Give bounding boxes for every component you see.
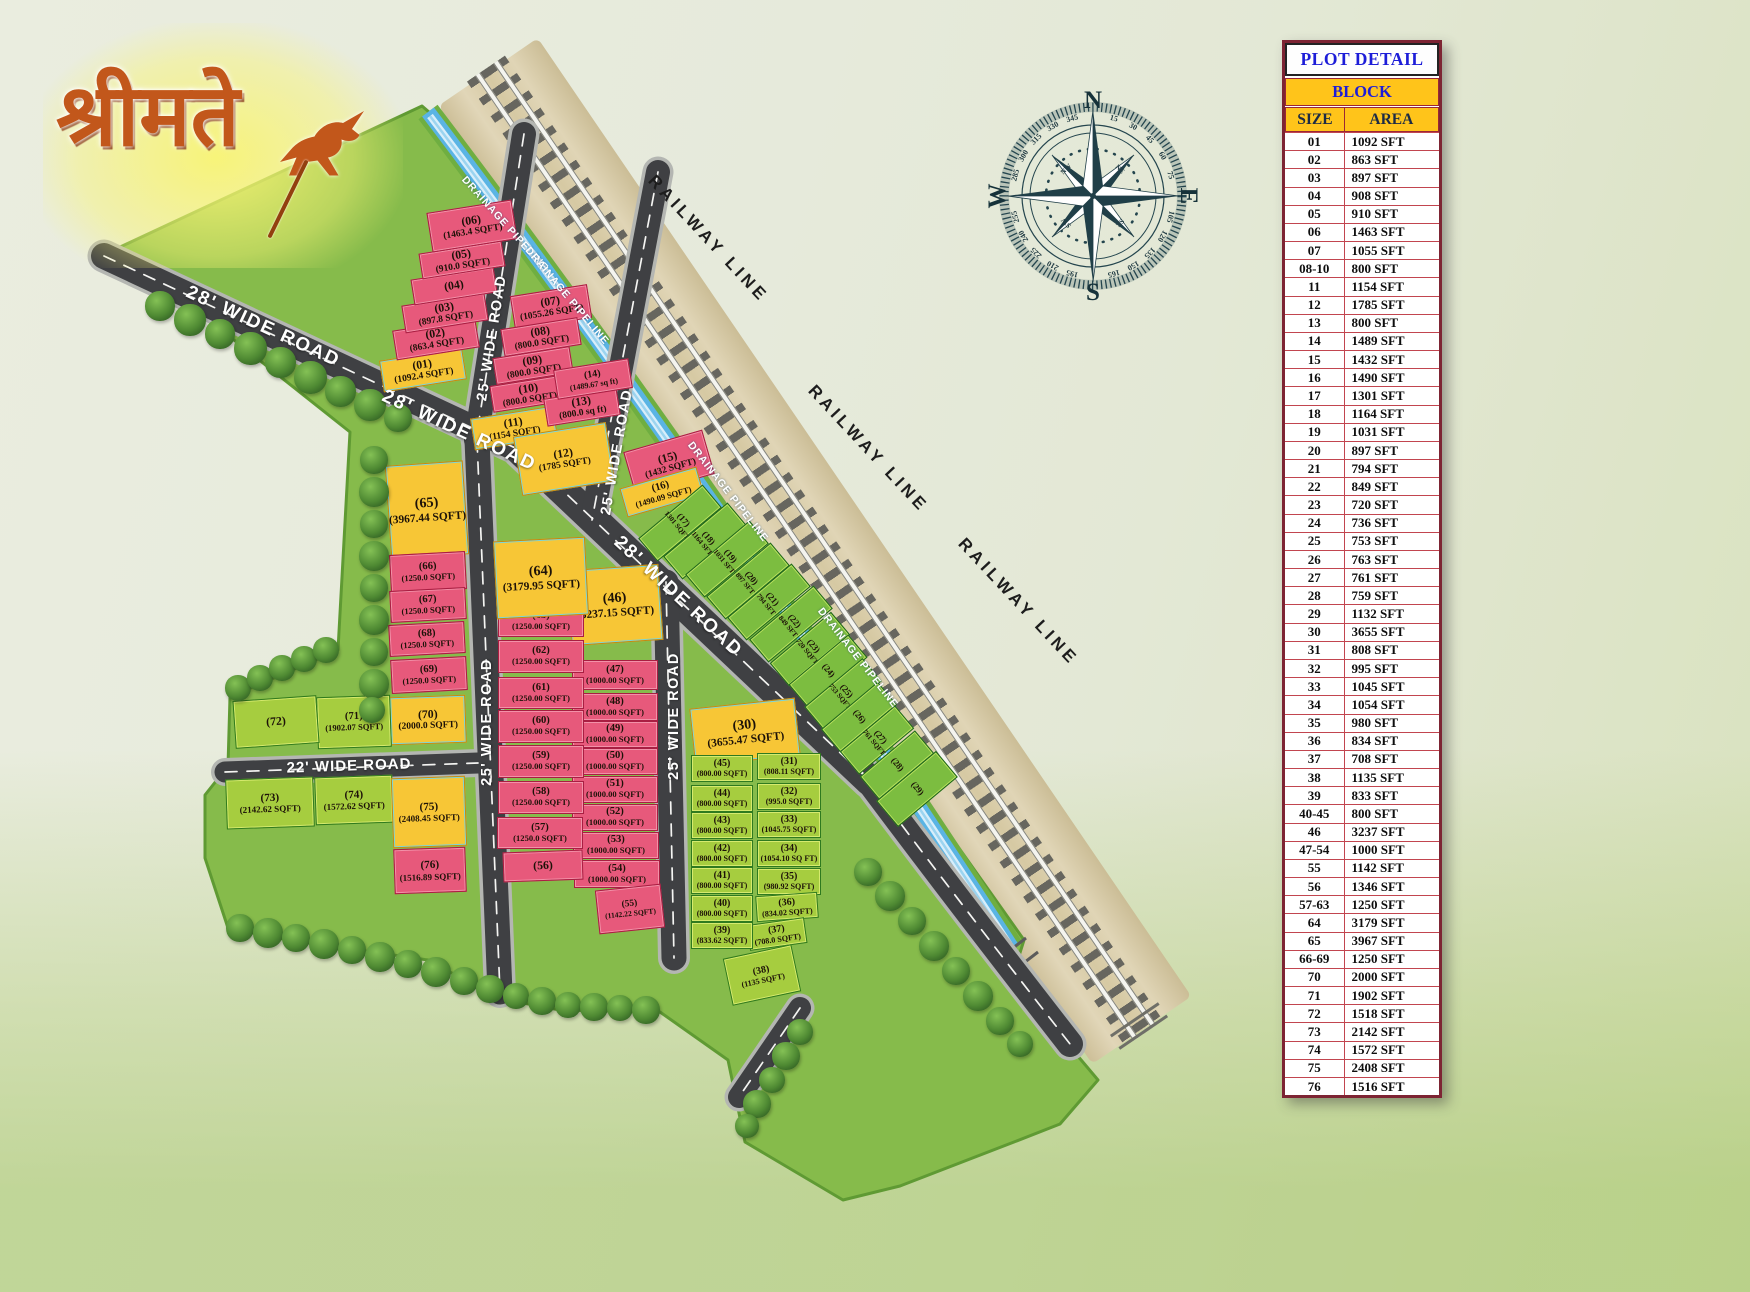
plot-area-cell: 736 SFT: [1345, 515, 1439, 532]
area-column-header: AREA: [1345, 108, 1438, 131]
plot-detail-row: 381135 SFT: [1285, 768, 1439, 786]
plot-area-cell: 1432 SFT: [1345, 351, 1439, 368]
plot-size-cell: 05: [1285, 206, 1345, 223]
plot-detail-row: 721518 SFT: [1285, 1004, 1439, 1022]
plot-size-cell: 21: [1285, 460, 1345, 477]
compass-degree-label: 75: [1165, 170, 1176, 180]
plot-detail-row: 24736 SFT: [1285, 514, 1439, 532]
compass-degree-label: 285: [1009, 168, 1021, 182]
plot-size-cell: 72: [1285, 1005, 1345, 1022]
table-title: PLOT DETAIL: [1285, 43, 1439, 76]
plot-size-cell: 25: [1285, 533, 1345, 550]
plot-size-cell: 73: [1285, 1023, 1345, 1040]
plot-area-cell: 1031 SFT: [1345, 424, 1439, 441]
plot-size-cell: 15: [1285, 351, 1345, 368]
plot-detail-row: 02863 SFT: [1285, 150, 1439, 168]
plot-area-cell: 980 SFT: [1345, 715, 1439, 732]
compass-degree-label: 345: [1065, 112, 1079, 124]
plot-detail-row: 40-45800 SFT: [1285, 804, 1439, 822]
plot-size-cell: 08-10: [1285, 260, 1345, 277]
plot-detail-row: 20897 SFT: [1285, 441, 1439, 459]
plot-area-cell: 1250 SFT: [1345, 951, 1439, 968]
plot-size-cell: 71: [1285, 987, 1345, 1004]
compass-degree-label: 105: [1165, 210, 1177, 224]
plot-area-cell: 3655 SFT: [1345, 624, 1439, 641]
plot-detail-row: 161490 SFT: [1285, 368, 1439, 386]
plot-area-cell: 1489 SFT: [1345, 333, 1439, 350]
plot-detail-row: 28759 SFT: [1285, 586, 1439, 604]
plot-area-cell: 834 SFT: [1345, 733, 1439, 750]
plot-size-cell: 30: [1285, 624, 1345, 641]
plot-size-cell: 22: [1285, 478, 1345, 495]
drainage-label-2: DRAINAGE PIPELINE: [523, 245, 612, 348]
plot-size-cell: 02: [1285, 151, 1345, 168]
plot-size-cell: 27: [1285, 569, 1345, 586]
plot-area-cell: 808 SFT: [1345, 642, 1439, 659]
plot-area-cell: 3237 SFT: [1345, 824, 1439, 841]
plot-area-cell: 910 SFT: [1345, 206, 1439, 223]
plot-detail-row: 66-691250 SFT: [1285, 950, 1439, 968]
plot-area-cell: 1154 SFT: [1345, 278, 1439, 295]
plot-area-cell: 800 SFT: [1345, 315, 1439, 332]
road-label-28-wide-3: 28' WIDE ROAD: [609, 532, 747, 663]
plot-size-cell: 13: [1285, 315, 1345, 332]
plot-size-cell: 06: [1285, 224, 1345, 241]
compass-degree-label: 165: [1107, 268, 1121, 280]
plot-area-cell: 1902 SFT: [1345, 987, 1439, 1004]
plot-area-cell: 1164 SFT: [1345, 406, 1439, 423]
compass-west-label: W: [984, 184, 1011, 209]
plot-detail-row: 341054 SFT: [1285, 695, 1439, 713]
plot-area-cell: 763 SFT: [1345, 551, 1439, 568]
plot-area-cell: 1346 SFT: [1345, 878, 1439, 895]
plot-area-cell: 1000 SFT: [1345, 842, 1439, 859]
plot-area-cell: 1490 SFT: [1345, 369, 1439, 386]
plot-detail-table: PLOT DETAIL BLOCK SIZE AREA 011092 SFT02…: [1282, 40, 1442, 1098]
compass-degree-label: 255: [1009, 210, 1021, 224]
plot-detail-row: 05910 SFT: [1285, 205, 1439, 223]
railway-line-label-3: RAILWAY LINE: [954, 534, 1083, 670]
plot-size-cell: 26: [1285, 551, 1345, 568]
plot-area-cell: 897 SFT: [1345, 442, 1439, 459]
plot-size-cell: 64: [1285, 914, 1345, 931]
plot-area-cell: 897 SFT: [1345, 169, 1439, 186]
plot-size-cell: 56: [1285, 878, 1345, 895]
plot-size-cell: 14: [1285, 333, 1345, 350]
plot-size-cell: 31: [1285, 642, 1345, 659]
plot-detail-row: 463237 SFT: [1285, 823, 1439, 841]
plot-size-cell: 34: [1285, 696, 1345, 713]
plot-size-cell: 74: [1285, 1042, 1345, 1059]
plot-area-cell: 1518 SFT: [1345, 1005, 1439, 1022]
plot-detail-row: 071055 SFT: [1285, 241, 1439, 259]
plot-detail-row: 21794 SFT: [1285, 459, 1439, 477]
plot-detail-row: 36834 SFT: [1285, 732, 1439, 750]
plot-area-cell: 1463 SFT: [1345, 224, 1439, 241]
plot-area-cell: 3967 SFT: [1345, 933, 1439, 950]
road-label-25-wide-3: 25' WIDE ROAD: [479, 658, 495, 786]
plot-size-cell: 39: [1285, 787, 1345, 804]
plot-detail-row: 653967 SFT: [1285, 932, 1439, 950]
plot-area-cell: 1785 SFT: [1345, 297, 1439, 314]
plot-detail-row: 121785 SFT: [1285, 296, 1439, 314]
plot-size-cell: 18: [1285, 406, 1345, 423]
plot-area-cell: 908 SFT: [1345, 188, 1439, 205]
plot-detail-row: 13800 SFT: [1285, 314, 1439, 332]
plot-size-cell: 19: [1285, 424, 1345, 441]
plot-area-cell: 1135 SFT: [1345, 769, 1439, 786]
plot-detail-row: 761516 SFT: [1285, 1077, 1439, 1095]
plot-detail-row: 04908 SFT: [1285, 187, 1439, 205]
drainage-label-3: DRAINAGE PIPELINE: [685, 440, 771, 545]
plot-area-cell: 720 SFT: [1345, 496, 1439, 513]
plot-detail-row: 551142 SFT: [1285, 859, 1439, 877]
brand-logo: श्रीमते: [48, 28, 398, 263]
plot-area-cell: 794 SFT: [1345, 460, 1439, 477]
plot-area-cell: 800 SFT: [1345, 805, 1439, 822]
plot-area-cell: 1132 SFT: [1345, 605, 1439, 622]
compass-north-label: N: [1084, 87, 1102, 114]
plot-area-cell: 759 SFT: [1345, 587, 1439, 604]
road-label-22-wide: 22' WIDE ROAD: [286, 755, 411, 776]
plot-size-cell: 17: [1285, 387, 1345, 404]
plot-area-cell: 1054 SFT: [1345, 696, 1439, 713]
plot-size-cell: 66-69: [1285, 951, 1345, 968]
road-label-25-wide-2: 25' WIDE ROAD: [598, 388, 636, 517]
plot-size-cell: 11: [1285, 278, 1345, 295]
plot-detail-row: 331045 SFT: [1285, 677, 1439, 695]
plot-detail-row: 711902 SFT: [1285, 986, 1439, 1004]
plot-size-cell: 03: [1285, 169, 1345, 186]
road-label-25-wide-4: 25' WIDE ROAD: [666, 652, 682, 780]
plot-area-cell: 2000 SFT: [1345, 969, 1439, 986]
plot-detail-row: 25753 SFT: [1285, 532, 1439, 550]
compass-degree-label: 15: [1109, 113, 1119, 124]
plot-area-cell: 1055 SFT: [1345, 242, 1439, 259]
plot-size-cell: 57-63: [1285, 896, 1345, 913]
plot-detail-row: 31808 SFT: [1285, 641, 1439, 659]
plot-size-cell: 23: [1285, 496, 1345, 513]
plot-detail-row: 702000 SFT: [1285, 968, 1439, 986]
plot-size-cell: 37: [1285, 751, 1345, 768]
plot-detail-row: 561346 SFT: [1285, 877, 1439, 895]
plot-area-cell: 2142 SFT: [1345, 1023, 1439, 1040]
plot-detail-row: 03897 SFT: [1285, 168, 1439, 186]
compass-east-label: E: [1175, 188, 1202, 205]
plot-detail-row: 57-631250 SFT: [1285, 895, 1439, 913]
road-label-28-wide-1: 28' WIDE ROAD: [182, 282, 343, 373]
plot-size-cell: 35: [1285, 715, 1345, 732]
compass-degree-label: 195: [1065, 268, 1079, 280]
plot-detail-row: 181164 SFT: [1285, 405, 1439, 423]
plot-detail-row: 171301 SFT: [1285, 386, 1439, 404]
plot-size-cell: 55: [1285, 860, 1345, 877]
plot-detail-row: 303655 SFT: [1285, 623, 1439, 641]
site-plan-poster: (01)(1092.4 SQFT)(02)(863.4 SQFT)(03)(89…: [0, 0, 1750, 1292]
plot-detail-row: 35980 SFT: [1285, 714, 1439, 732]
plot-detail-row: 26763 SFT: [1285, 550, 1439, 568]
plot-detail-row: 37708 SFT: [1285, 750, 1439, 768]
plot-area-cell: 708 SFT: [1345, 751, 1439, 768]
plot-detail-row: 23720 SFT: [1285, 495, 1439, 513]
plot-detail-row: 47-541000 SFT: [1285, 841, 1439, 859]
plot-detail-row: 741572 SFT: [1285, 1041, 1439, 1059]
plot-size-cell: 07: [1285, 242, 1345, 259]
plot-detail-row: 191031 SFT: [1285, 423, 1439, 441]
plot-area-cell: 1045 SFT: [1345, 678, 1439, 695]
plot-area-cell: 800 SFT: [1345, 260, 1439, 277]
plot-detail-row: 732142 SFT: [1285, 1022, 1439, 1040]
table-block-header: BLOCK: [1285, 78, 1439, 106]
plot-size-cell: 65: [1285, 933, 1345, 950]
plot-area-cell: 1516 SFT: [1345, 1078, 1439, 1095]
plot-detail-row: 061463 SFT: [1285, 223, 1439, 241]
plot-area-cell: 1092 SFT: [1345, 133, 1439, 150]
plot-area-cell: 753 SFT: [1345, 533, 1439, 550]
galloping-horse-icon: [270, 108, 380, 180]
road-label-28-wide-2: 28' WIDE ROAD: [378, 386, 539, 477]
plot-size-cell: 32: [1285, 660, 1345, 677]
plot-detail-row: 08-10800 SFT: [1285, 259, 1439, 277]
plot-size-cell: 28: [1285, 587, 1345, 604]
plot-detail-row: 111154 SFT: [1285, 277, 1439, 295]
plot-area-cell: 995 SFT: [1345, 660, 1439, 677]
brand-name: श्रीमते: [56, 54, 240, 171]
plot-size-cell: 40-45: [1285, 805, 1345, 822]
plot-size-cell: 04: [1285, 188, 1345, 205]
plot-detail-row: 291132 SFT: [1285, 604, 1439, 622]
plot-area-cell: 1250 SFT: [1345, 896, 1439, 913]
plot-size-cell: 01: [1285, 133, 1345, 150]
plot-detail-row: 011092 SFT: [1285, 132, 1439, 150]
railway-line-label-2: RAILWAY LINE: [804, 381, 933, 517]
plot-detail-row: 151432 SFT: [1285, 350, 1439, 368]
plot-size-cell: 12: [1285, 297, 1345, 314]
plot-detail-row: 27761 SFT: [1285, 568, 1439, 586]
plot-area-cell: 833 SFT: [1345, 787, 1439, 804]
plot-detail-row: 752408 SFT: [1285, 1059, 1439, 1077]
plot-area-cell: 761 SFT: [1345, 569, 1439, 586]
plot-area-cell: 1142 SFT: [1345, 860, 1439, 877]
plot-area-cell: 1572 SFT: [1345, 1042, 1439, 1059]
plot-size-cell: 16: [1285, 369, 1345, 386]
plot-detail-row: 141489 SFT: [1285, 332, 1439, 350]
plot-size-cell: 20: [1285, 442, 1345, 459]
plot-detail-row: 22849 SFT: [1285, 477, 1439, 495]
plot-size-cell: 70: [1285, 969, 1345, 986]
plot-detail-row: 32995 SFT: [1285, 659, 1439, 677]
plot-area-cell: 2408 SFT: [1345, 1060, 1439, 1077]
size-column-header: SIZE: [1286, 108, 1345, 131]
compass-south-label: S: [1086, 279, 1100, 306]
drainage-label-4: DRAINAGE PIPELINE: [815, 606, 901, 711]
table-column-headers: SIZE AREA: [1285, 107, 1439, 132]
compass-rose: 1530456075105120135150165195210225240255…: [990, 90, 1196, 302]
plot-area-cell: 849 SFT: [1345, 478, 1439, 495]
plot-size-cell: 75: [1285, 1060, 1345, 1077]
plot-area-cell: 3179 SFT: [1345, 914, 1439, 931]
plot-area-cell: 1301 SFT: [1345, 387, 1439, 404]
plot-size-cell: 33: [1285, 678, 1345, 695]
plot-size-cell: 36: [1285, 733, 1345, 750]
plot-size-cell: 76: [1285, 1078, 1345, 1095]
plot-area-cell: 863 SFT: [1345, 151, 1439, 168]
plot-size-cell: 47-54: [1285, 842, 1345, 859]
table-rows: 011092 SFT02863 SFT03897 SFT04908 SFT059…: [1285, 132, 1439, 1095]
plot-detail-row: 643179 SFT: [1285, 913, 1439, 931]
plot-size-cell: 38: [1285, 769, 1345, 786]
plot-size-cell: 46: [1285, 824, 1345, 841]
railway-line-label-1: RAILWAY LINE: [644, 171, 773, 307]
plot-size-cell: 24: [1285, 515, 1345, 532]
road-label-25-wide-1: 25' WIDE ROAD: [474, 274, 510, 403]
plot-size-cell: 29: [1285, 605, 1345, 622]
plot-detail-row: 39833 SFT: [1285, 786, 1439, 804]
